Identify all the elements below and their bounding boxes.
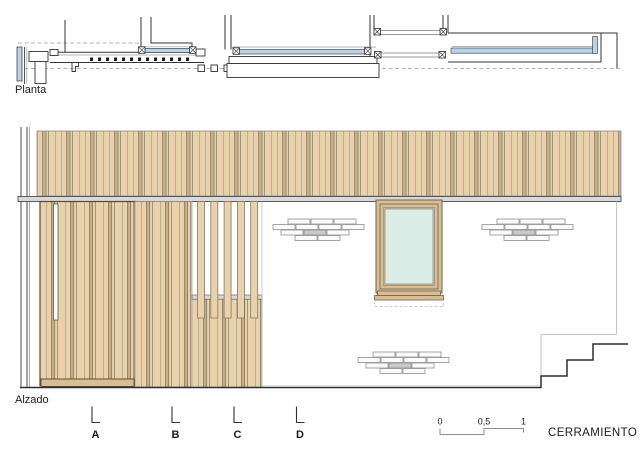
- brick-vent-bottom: [358, 352, 449, 374]
- drawing-title: CERRAMIENTO: [548, 427, 637, 439]
- architectural-drawing: Planta: [0, 0, 640, 452]
- section-marks: A B C D: [92, 407, 305, 442]
- plan-label: Planta: [15, 84, 47, 96]
- louver-screen-section: [192, 202, 262, 388]
- section-mark-a-label: A: [92, 429, 100, 441]
- section-mark-d-label: D: [296, 429, 304, 441]
- plan-sliding-door: [374, 29, 447, 59]
- window-sill-step: [378, 291, 441, 296]
- scale-bar: 0 0,5 1: [437, 417, 526, 435]
- window-glass: [385, 209, 433, 284]
- plan-track-teeth: [90, 58, 189, 62]
- plan-glazing-strip: [451, 48, 593, 53]
- plan-left-glazing: [17, 47, 48, 84]
- scale-tick-0: 0: [437, 417, 442, 427]
- section-mark-c-label: C: [234, 429, 242, 441]
- window-sill: [375, 296, 444, 301]
- window-sill-dashed-projection: [375, 302, 444, 307]
- section-mark-b-label: B: [172, 429, 180, 441]
- plan-door-hook: [72, 63, 79, 72]
- brick-vent-right: [482, 219, 573, 241]
- section-mark-d: [297, 407, 305, 423]
- section-mark-b: [172, 407, 180, 423]
- plan-main-window: [227, 47, 379, 78]
- panel-handle-slot: [54, 204, 59, 320]
- plan-right-wing: [448, 33, 617, 68]
- timber-cladding-middle: [135, 202, 192, 388]
- scale-tick-05: 0,5: [478, 417, 491, 427]
- elevation-view: [18, 127, 628, 388]
- elevation-left-posts: [21, 127, 30, 388]
- elevation-window: [375, 200, 444, 307]
- section-mark-a: [92, 407, 100, 423]
- drawing-sheet: Planta: [0, 0, 640, 452]
- plan-glazing-corner: [593, 37, 598, 54]
- scale-tick-1: 1: [521, 417, 526, 427]
- horizontal-divider-rail: [18, 197, 621, 202]
- plan-glazing-left-window: [139, 47, 197, 54]
- scale-bar-line: [440, 429, 524, 435]
- elevation-label: Alzado: [15, 394, 49, 406]
- plan-view: [17, 15, 622, 84]
- brick-vent-left: [273, 219, 364, 241]
- section-mark-c: [234, 407, 242, 423]
- plan-sill-band: [229, 57, 377, 64]
- plan-slab: [227, 64, 379, 78]
- panel-bottom-rail: [41, 379, 134, 387]
- timber-sliding-panel: [40, 202, 135, 387]
- timber-cladding-upper-band: [37, 131, 621, 196]
